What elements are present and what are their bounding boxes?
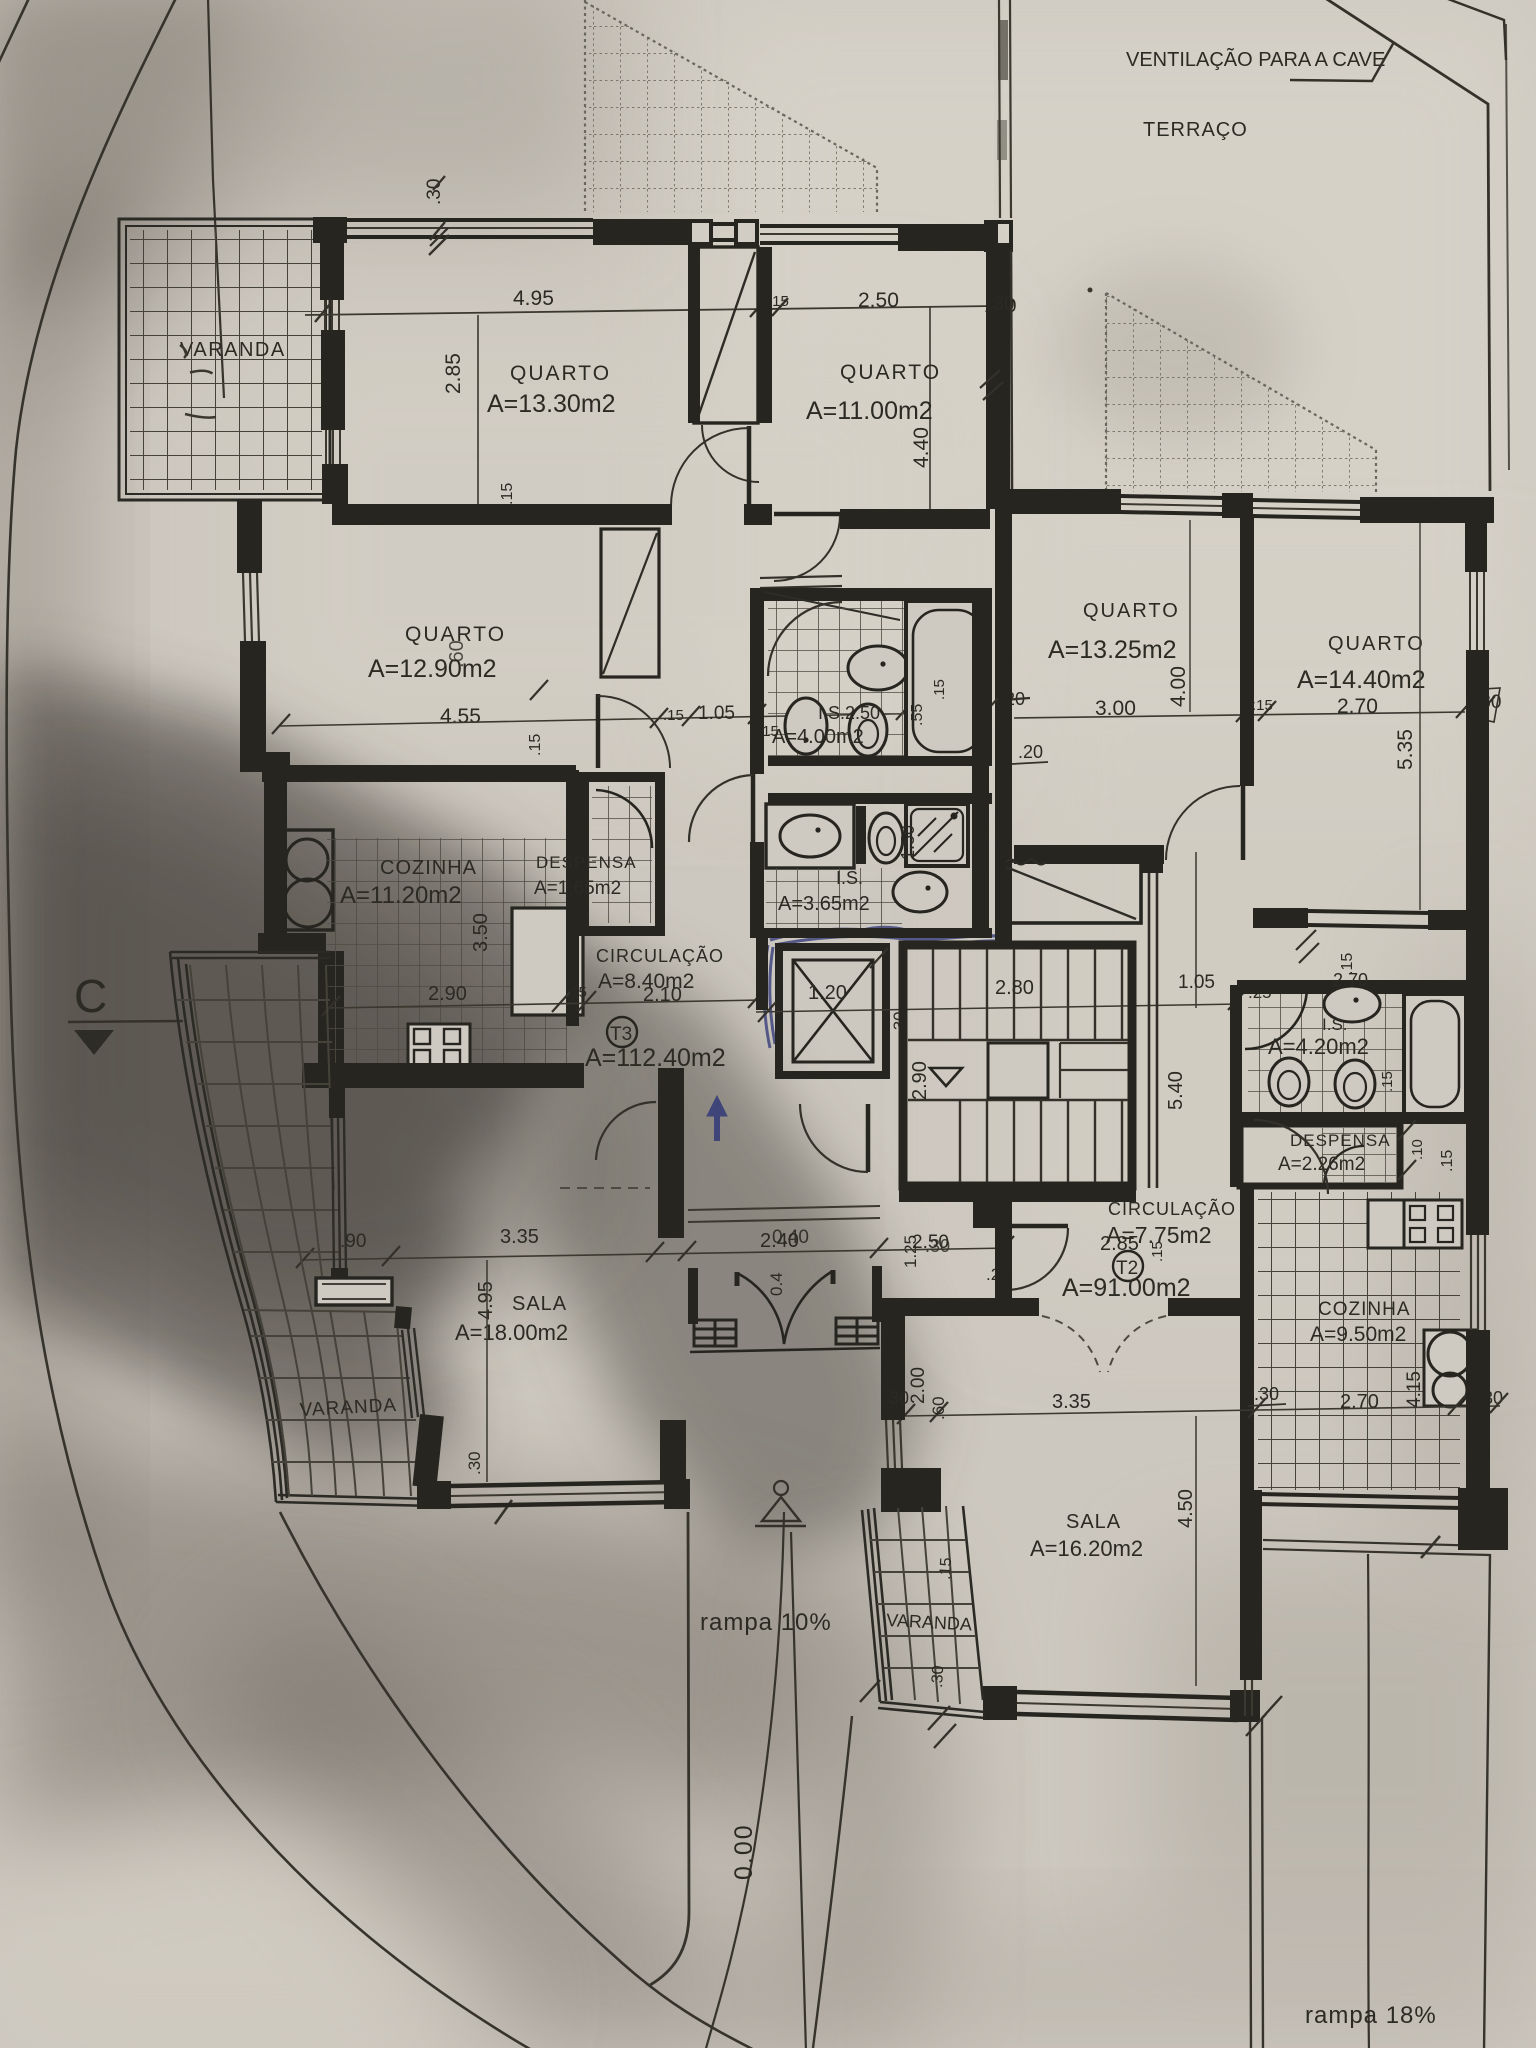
- svg-text:COZINHA: COZINHA: [1318, 1299, 1411, 1320]
- svg-text:0.40: 0.40: [772, 1227, 809, 1248]
- svg-text:2.70: 2.70: [1337, 695, 1378, 718]
- svg-text:.15: .15: [1149, 1241, 1166, 1262]
- svg-text:QUARTO: QUARTO: [1328, 633, 1425, 655]
- svg-text:0.00: 0.00: [730, 1823, 758, 1880]
- svg-text:.30: .30: [884, 1388, 909, 1408]
- svg-text:3.35: 3.35: [1052, 1391, 1091, 1413]
- svg-text:3.35: 3.35: [500, 1226, 539, 1248]
- svg-text:.15: .15: [499, 483, 516, 505]
- svg-text:A=16.20m2: A=16.20m2: [1030, 1536, 1143, 1561]
- svg-text:4.50: 4.50: [1175, 1489, 1197, 1528]
- svg-text:.15: .15: [663, 707, 684, 724]
- svg-text:4.55: 4.55: [440, 705, 481, 728]
- svg-text:SALA: SALA: [512, 1293, 567, 1315]
- svg-text:.90: .90: [340, 1231, 366, 1252]
- svg-text:.30: .30: [424, 179, 445, 205]
- svg-text:.30: .30: [925, 1236, 950, 1256]
- svg-text:A=11.20m2: A=11.20m2: [340, 882, 462, 909]
- svg-text:.55: .55: [909, 704, 926, 726]
- svg-text:3.50: 3.50: [470, 913, 492, 952]
- svg-text:1.50: 1.50: [898, 825, 918, 860]
- svg-text:.30: .30: [929, 1665, 947, 1688]
- svg-text:2.00: 2.00: [908, 1367, 929, 1404]
- svg-text:A=9.50m2: A=9.50m2: [1310, 1323, 1406, 1346]
- svg-text:DESPENSA: DESPENSA: [536, 853, 637, 872]
- svg-text:A=1.65m2: A=1.65m2: [534, 878, 621, 899]
- svg-text:5.35: 5.35: [1394, 729, 1417, 770]
- svg-text:.60: .60: [929, 1396, 948, 1420]
- svg-text:1.05: 1.05: [1178, 972, 1215, 993]
- svg-text:.15: .15: [937, 1557, 955, 1580]
- svg-text:4.40: 4.40: [910, 427, 933, 468]
- svg-text:.15: .15: [1379, 1071, 1396, 1092]
- svg-text:.30: .30: [465, 1451, 484, 1475]
- svg-text:.15: .15: [527, 734, 544, 756]
- svg-text:rampa 18%: rampa 18%: [1305, 2002, 1437, 2029]
- svg-text:.60: .60: [446, 640, 468, 668]
- svg-text:QUARTO: QUARTO: [510, 362, 611, 385]
- svg-text:rampa 10%: rampa 10%: [700, 1609, 832, 1636]
- svg-text:COZINHA: COZINHA: [380, 857, 477, 879]
- svg-text:.15: .15: [931, 679, 948, 700]
- svg-text:.15: .15: [1439, 1150, 1456, 1172]
- svg-text:A=13.25m2: A=13.25m2: [1048, 636, 1177, 664]
- svg-text:CIRCULAÇÃO: CIRCULAÇÃO: [596, 945, 724, 966]
- svg-text:2.50: 2.50: [858, 289, 899, 312]
- svg-text:2.90: 2.90: [428, 983, 467, 1005]
- svg-text:A=18.00m2: A=18.00m2: [455, 1320, 568, 1345]
- svg-text:A=4.20m2: A=4.20m2: [1268, 1034, 1369, 1059]
- svg-text:2.90: 2.90: [909, 1061, 931, 1100]
- svg-text:VARANDA: VARANDA: [180, 339, 286, 361]
- svg-text:2.85: 2.85: [442, 353, 465, 394]
- svg-text:A=112.40m2: A=112.40m2: [585, 1044, 726, 1072]
- svg-text:VENTILAÇÃO PARA A CAVE: VENTILAÇÃO PARA A CAVE: [1126, 47, 1385, 71]
- svg-text:4.95: 4.95: [513, 287, 554, 310]
- svg-text:4.00: 4.00: [1167, 666, 1190, 707]
- svg-text:C: C: [74, 970, 107, 1022]
- svg-text:QUARTO: QUARTO: [840, 361, 941, 384]
- svg-text:A=11.00m2: A=11.00m2: [806, 397, 933, 425]
- svg-text:1.20: 1.20: [808, 982, 847, 1004]
- svg-text:2.80: 2.80: [995, 977, 1034, 999]
- svg-text:I.S.2.50: I.S.2.50: [818, 703, 880, 723]
- svg-text:1.05: 1.05: [698, 703, 735, 724]
- svg-text:A=12.90m2: A=12.90m2: [368, 655, 497, 683]
- svg-text:QUARTO: QUARTO: [1083, 600, 1180, 622]
- svg-text:TERRAÇO: TERRAÇO: [1143, 119, 1248, 141]
- svg-text:A=14.40m2: A=14.40m2: [1297, 666, 1426, 694]
- svg-text:2.70: 2.70: [1340, 1391, 1379, 1413]
- svg-text:.15: .15: [1252, 697, 1273, 714]
- svg-text:A=13.30m2: A=13.30m2: [487, 390, 616, 418]
- svg-text:.30: .30: [1254, 1384, 1279, 1404]
- svg-text:SALA: SALA: [1066, 1511, 1121, 1533]
- svg-text:A=3.65m2: A=3.65m2: [778, 893, 870, 915]
- svg-text:4.95: 4.95: [475, 1281, 497, 1320]
- svg-text:5.40: 5.40: [1165, 1071, 1187, 1110]
- svg-text:I.S.: I.S.: [836, 868, 863, 888]
- svg-text:.10: .10: [1409, 1139, 1426, 1160]
- svg-text:A=4.00m2: A=4.00m2: [772, 726, 864, 748]
- svg-text:CIRCULAÇÃO: CIRCULAÇÃO: [1108, 1198, 1236, 1219]
- svg-text:T3: T3: [610, 1024, 632, 1045]
- svg-text:.20: .20: [1018, 742, 1043, 762]
- svg-text:A=91.00m2: A=91.00m2: [1062, 1274, 1191, 1302]
- svg-text:4.15: 4.15: [1404, 1371, 1425, 1408]
- svg-text:I.S.: I.S.: [1322, 1015, 1348, 1034]
- svg-text:0.4: 0.4: [767, 1272, 786, 1296]
- svg-text:2.70: 2.70: [1333, 970, 1368, 990]
